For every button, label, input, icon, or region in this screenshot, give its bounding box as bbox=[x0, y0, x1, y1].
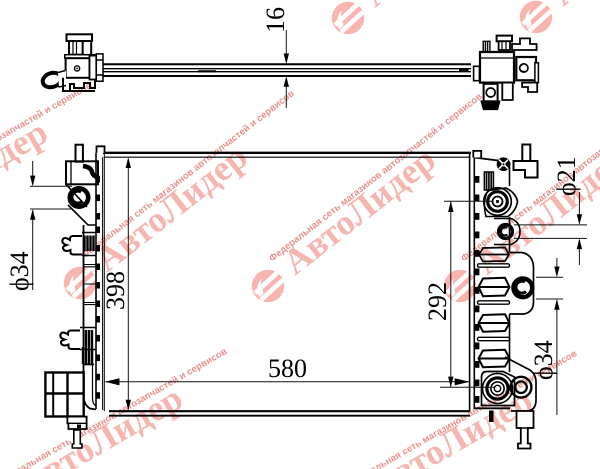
svg-text:16: 16 bbox=[261, 7, 290, 33]
svg-text:292: 292 bbox=[423, 282, 452, 321]
svg-text:580: 580 bbox=[268, 354, 307, 383]
svg-text:ϕ21: ϕ21 bbox=[552, 156, 581, 196]
svg-text:ϕ34: ϕ34 bbox=[5, 251, 34, 291]
svg-text:398: 398 bbox=[101, 271, 130, 310]
svg-text:ϕ34: ϕ34 bbox=[529, 340, 558, 380]
